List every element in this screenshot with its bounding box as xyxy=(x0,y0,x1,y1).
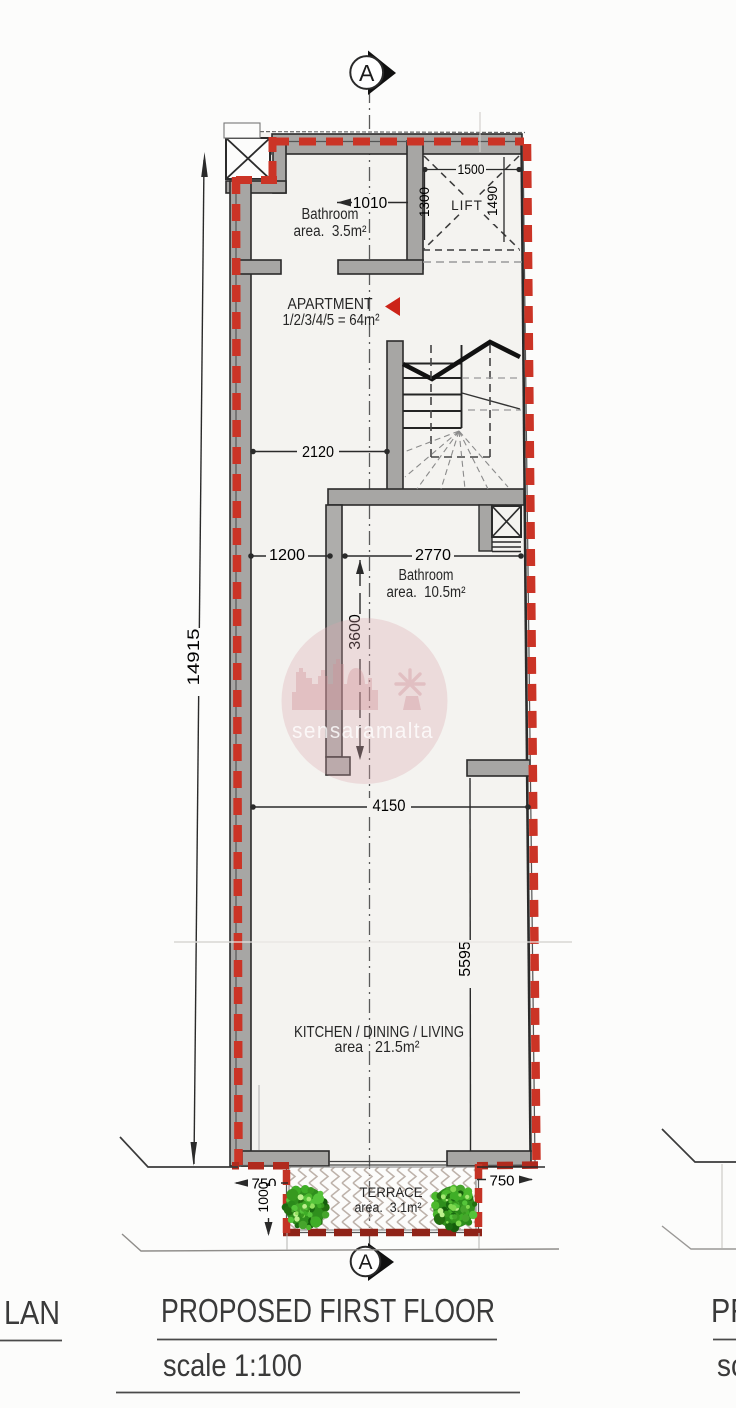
svg-text:PROPOSED FIRST FLOOR: PROPOSED FIRST FLOOR xyxy=(161,1292,495,1329)
svg-text:5595: 5595 xyxy=(457,941,474,977)
svg-text:sensaramalta: sensaramalta xyxy=(292,718,434,743)
svg-text:4150: 4150 xyxy=(373,797,406,815)
svg-text:A: A xyxy=(359,60,375,86)
svg-text:A: A xyxy=(358,1251,372,1274)
svg-text:TERRACE: TERRACE xyxy=(360,1184,423,1200)
svg-text:area. 3.1m²: area. 3.1m² xyxy=(355,1200,422,1215)
svg-text:14915: 14915 xyxy=(184,629,203,686)
svg-text:1490: 1490 xyxy=(485,186,500,216)
svg-text:area 21.5m²: area 21.5m² xyxy=(335,1039,421,1056)
svg-text:750: 750 xyxy=(489,1173,514,1190)
svg-text:Bathroom: Bathroom xyxy=(302,206,359,223)
svg-text:1000: 1000 xyxy=(255,1181,271,1212)
svg-text:scale 1:100: scale 1:100 xyxy=(163,1347,302,1383)
svg-text:2770: 2770 xyxy=(415,547,451,564)
svg-text:LIFT: LIFT xyxy=(451,198,483,213)
svg-text:1/2/3/4/5 = 64m²: 1/2/3/4/5 = 64m² xyxy=(283,312,381,329)
svg-text:1200: 1200 xyxy=(269,547,305,564)
svg-text:2120: 2120 xyxy=(302,444,334,461)
svg-text:APARTMENT: APARTMENT xyxy=(288,296,373,313)
svg-text:sc: sc xyxy=(717,1347,736,1383)
svg-text:LAN: LAN xyxy=(4,1294,60,1331)
svg-text:area. 10.5m²: area. 10.5m² xyxy=(387,584,466,601)
svg-text:1300: 1300 xyxy=(417,187,432,217)
svg-text:1500: 1500 xyxy=(458,161,485,177)
svg-text:Bathroom: Bathroom xyxy=(399,567,454,584)
svg-text:area. 3.5m²: area. 3.5m² xyxy=(294,223,367,240)
svg-text:PR: PR xyxy=(711,1292,736,1329)
